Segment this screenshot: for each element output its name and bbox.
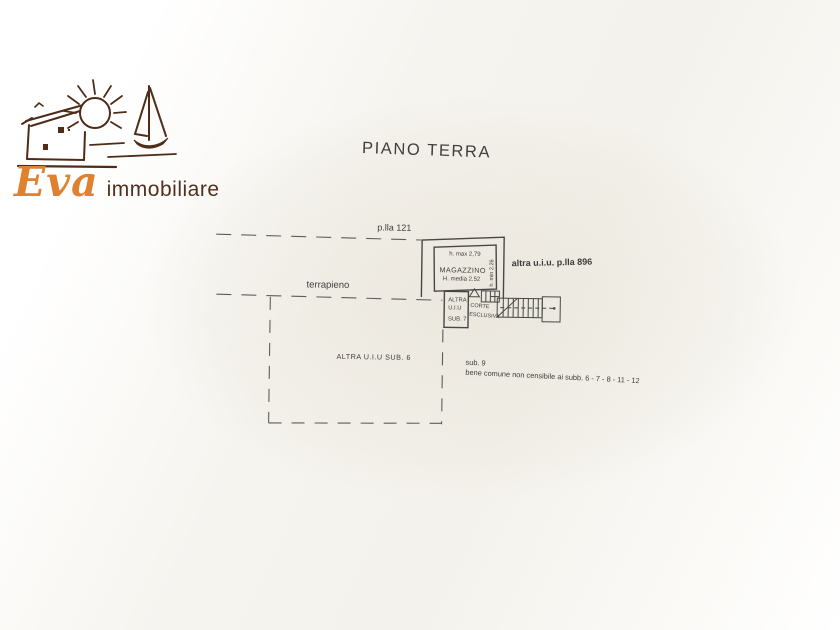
floor-plan-drawing: p.lla 121 terrapieno altra u.i.u. p.lla … bbox=[198, 210, 641, 436]
floor-plan: p.lla 121 terrapieno altra u.i.u. p.lla … bbox=[198, 210, 641, 436]
house-sun-boat-sketch-icon bbox=[16, 58, 206, 170]
brand-name-rest: immobiliare bbox=[107, 178, 220, 202]
staircase bbox=[497, 296, 560, 322]
brand-name-script: Eva bbox=[14, 162, 99, 203]
page-title: PIANO TERRA bbox=[362, 139, 492, 162]
small-steps-block bbox=[481, 291, 499, 302]
parcel-121-label: p.lla 121 bbox=[377, 222, 411, 232]
magazzino-h-media: H. media 2.52 bbox=[443, 276, 481, 283]
corte-line1: CORTE bbox=[470, 303, 490, 311]
altra-uiu-parcel-label: altra u.i.u. p.lla 896 bbox=[512, 257, 593, 269]
door-mark bbox=[43, 144, 48, 150]
sub6-label: ALTRA U.I.U SUB. 6 bbox=[336, 352, 410, 362]
magazzino-h-max: h. max 2,79 bbox=[449, 251, 481, 257]
sub7-line2: U.I.U bbox=[448, 305, 461, 311]
window-mark bbox=[58, 127, 64, 133]
boundary-dashed-lines bbox=[214, 234, 445, 425]
terrapieno-label: terrapieno bbox=[306, 279, 349, 291]
magazzino-h-min: h. min 2.26 bbox=[489, 259, 495, 286]
boat-hull bbox=[134, 138, 168, 148]
sub7-line1: ALTRA bbox=[448, 297, 466, 303]
sub9-label: sub. 9 bbox=[465, 358, 486, 368]
corte-line2: ESCLUSIVA bbox=[469, 312, 500, 321]
magazzino-name: MAGAZZINO bbox=[440, 265, 486, 275]
sub7-line3: SUB. 7 bbox=[448, 316, 466, 322]
agency-logo: Eva immobiliare bbox=[14, 58, 224, 218]
bene-comune-label: bene comune non censibile ai subb. 6 - 7… bbox=[465, 368, 640, 386]
